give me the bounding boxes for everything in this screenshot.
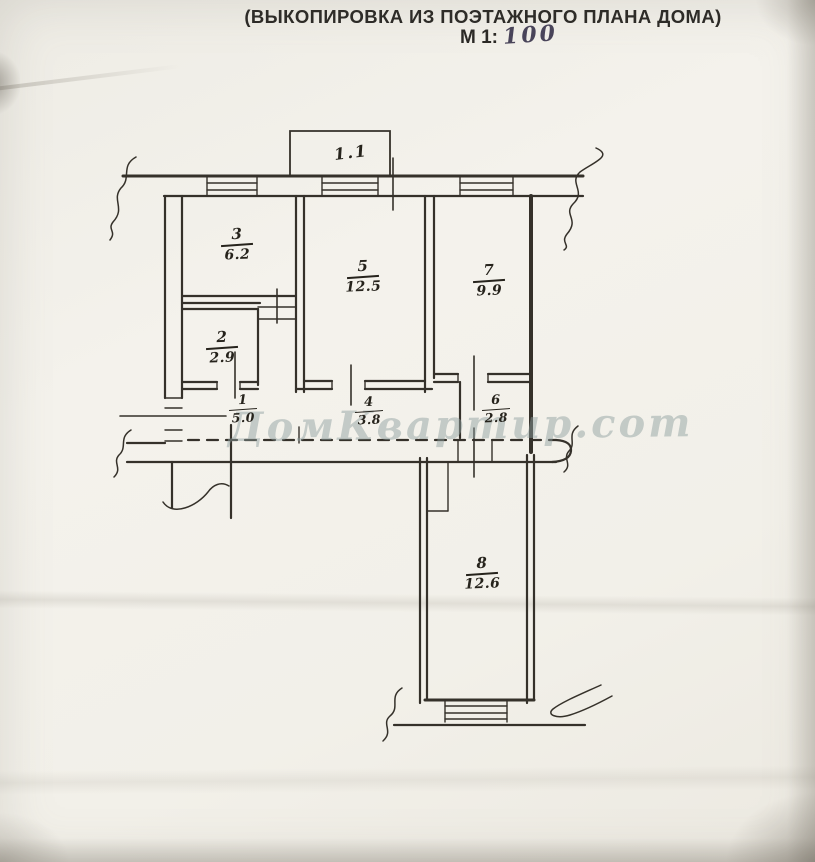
room-number: 5 [357, 259, 368, 274]
room-number: 3 [231, 227, 242, 242]
room-area: 3.8 [357, 414, 381, 427]
wall-break-squiggles [110, 148, 612, 741]
room-label-1: 1 5.0 [210, 393, 275, 426]
room-number: 2 [216, 330, 227, 345]
room-label-5: 5 12.5 [330, 258, 395, 295]
room-label-6: 6 2.8 [463, 393, 528, 426]
outer-walls [123, 176, 583, 700]
room-number: 1 [238, 394, 247, 407]
room-label-4: 4 3.8 [336, 395, 401, 428]
room-label-8: 8 12.6 [449, 555, 514, 592]
room-area: 12.6 [464, 576, 501, 591]
room-label-3: 3 6.2 [204, 226, 269, 263]
scanned-floor-plan-page: ПЛАН (ВЫКОПИРОВКА ИЗ ПОЭТАЖНОГО ПЛАНА ДО… [0, 0, 815, 862]
room-number: 6 [491, 394, 500, 407]
room-number: 4 [364, 396, 373, 409]
room-label-7: 7 9.9 [456, 262, 521, 299]
room-area: 9.9 [476, 284, 502, 299]
floor-plan-drawing [0, 0, 815, 862]
room-area: 12.5 [345, 279, 382, 294]
room-area: 2.9 [209, 351, 235, 366]
room-number: 7 [483, 263, 494, 278]
room-area: 2.8 [484, 412, 508, 425]
room-area: 5.0 [231, 412, 255, 425]
room-area: 6.2 [224, 248, 250, 263]
room-number: 8 [476, 556, 487, 571]
room-label-2: 2 2.9 [189, 329, 254, 366]
